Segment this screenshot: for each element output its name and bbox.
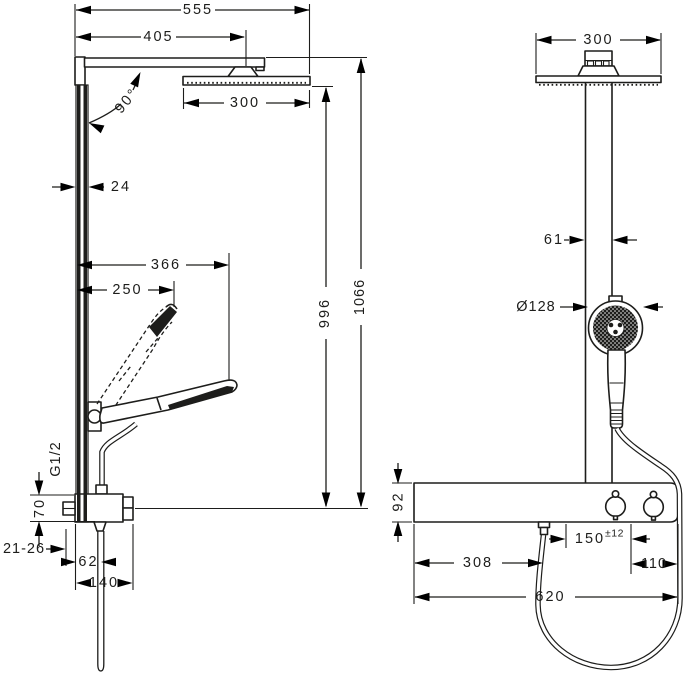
dim-arm-projection-label: 405: [143, 29, 173, 45]
dim-right-offset: 110: [632, 556, 678, 572]
dim-supply-tolerance-label: ±12: [605, 528, 624, 540]
arm-joint-cone: [228, 67, 258, 77]
dim-wall-adjust: 21-26: [3, 541, 66, 557]
arm-end-cap: [256, 67, 264, 71]
dim-valve-height-label: 70: [32, 498, 48, 518]
dim-total-height-label: 1066: [352, 279, 368, 315]
thread-label: G1/2: [48, 441, 64, 476]
handshower-front: [589, 296, 643, 428]
dim-arm-angle-label: 90°: [112, 85, 142, 117]
dim-supply-spacing: 150 ±12: [549, 528, 650, 548]
front-view: [414, 51, 680, 668]
dim-overhead-width-front-label: 300: [583, 32, 613, 48]
dim-valve-depth-label: 140: [89, 575, 119, 591]
dim-arm-projection: 405: [76, 29, 245, 45]
dim-shelf-width: 620: [415, 589, 678, 605]
shower-dimension-drawing: 555 405 300 90° 24: [0, 0, 686, 675]
dim-supply-spacing-label: 150: [575, 531, 605, 547]
dim-hand-length: 250: [77, 282, 174, 298]
dim-inlet-offset: 308: [415, 555, 544, 571]
dim-shelf-height-label: 92: [391, 491, 407, 511]
dim-inlet-offset-label: 308: [463, 555, 493, 571]
dim-valve-depth: 140: [76, 575, 133, 591]
dim-hand-diameter: Ø128: [516, 299, 663, 315]
dim-overhead-width-side-label: 300: [230, 95, 260, 111]
dim-hand-diameter-label: Ø128: [516, 299, 555, 315]
holder-pivot: [88, 410, 101, 423]
dim-bar-depth: 24: [52, 179, 131, 195]
dim-head-height: 996: [317, 87, 333, 508]
overhead-shower-front: [536, 76, 661, 83]
technical-drawing-page: 555 405 300 90° 24: [0, 0, 686, 675]
shower-arm: [85, 58, 265, 67]
shower-pipe: [586, 83, 613, 484]
dim-arm-angle: 90°: [87, 70, 144, 133]
dim-pipe-width: 61: [544, 232, 637, 248]
handshower-handle: [608, 350, 626, 428]
dim-overhead-width-front: 300: [537, 32, 662, 48]
dim-head-height-label: 996: [317, 298, 333, 328]
hose-front: [538, 429, 680, 668]
shut-off-valve: [63, 485, 133, 531]
hose-upper-side: [102, 424, 136, 485]
hose-nut: [94, 522, 106, 531]
hose-lower-side: [98, 531, 104, 671]
dim-hand-length-label: 250: [112, 282, 142, 298]
handshower-lowered: [100, 380, 237, 423]
side-view-dimensions: 555 405 300 90° 24: [3, 2, 368, 591]
overhead-shower-side: [183, 77, 310, 86]
dim-bar-depth-label: 24: [111, 179, 131, 195]
dim-shelf-width-label: 620: [535, 589, 565, 605]
shelf-hose-fitting: [539, 522, 550, 535]
dim-shelf-height: 92: [391, 463, 407, 542]
dim-right-offset-label: 110: [641, 556, 667, 572]
dim-hand-reach: 366: [77, 257, 229, 273]
dim-total-width: 555: [76, 2, 310, 18]
dim-hand-reach-label: 366: [151, 257, 181, 273]
ceiling-bracket: [578, 51, 619, 76]
dim-outlet-offset-label: 62: [78, 554, 98, 570]
dim-overhead-width-side: 300: [184, 95, 310, 111]
dim-total-height: 1066: [352, 58, 368, 508]
wall-bar: [76, 85, 88, 522]
dim-wall-adjust-label: 21-26: [3, 541, 45, 557]
dim-valve-height: 70: [32, 472, 48, 546]
dim-total-width-label: 555: [183, 2, 213, 18]
wall-plate: [75, 57, 85, 85]
dim-pipe-width-label: 61: [544, 232, 564, 248]
dim-outlet-offset: 62: [61, 554, 116, 570]
thermostat-shelf: [414, 483, 678, 522]
